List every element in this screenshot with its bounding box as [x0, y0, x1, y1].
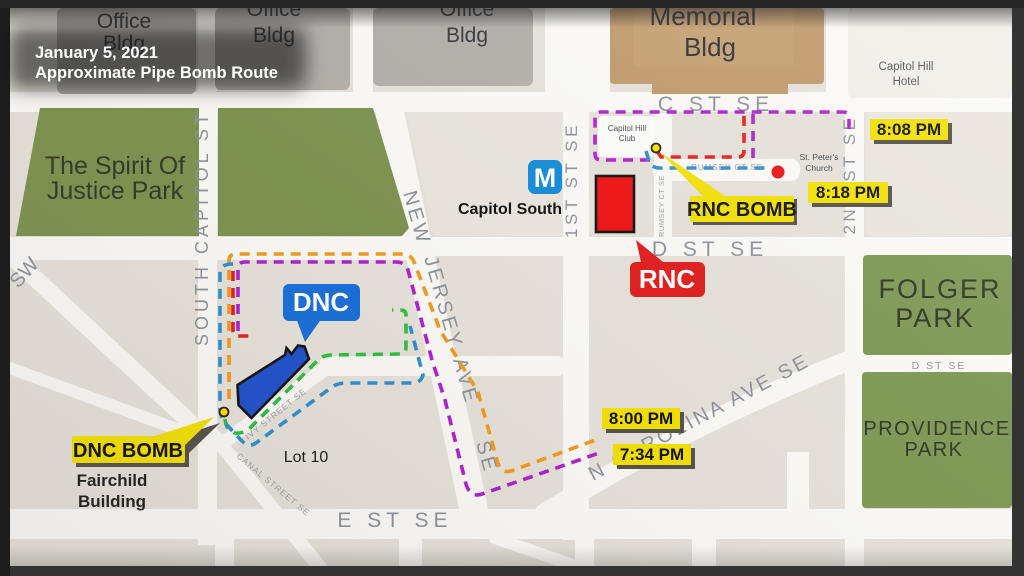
- svg-text:2ND ST SE: 2ND ST SE: [840, 115, 859, 234]
- svg-text:The Spirit Of: The Spirit Of: [45, 152, 185, 180]
- svg-text:Justice Park: Justice Park: [47, 177, 184, 205]
- svg-text:RUMSEY CT SE: RUMSEY CT SE: [657, 175, 666, 237]
- svg-text:Church: Church: [805, 163, 833, 173]
- svg-text:RNC BOMB: RNC BOMB: [687, 199, 797, 221]
- svg-text:SOUTH CAPITOL ST: SOUTH CAPITOL ST: [192, 110, 212, 346]
- svg-text:Capitol Hill: Capitol Hill: [879, 61, 934, 73]
- svg-text:Office: Office: [440, 8, 494, 21]
- svg-text:Lot 10: Lot 10: [284, 449, 329, 466]
- svg-text:Building: Building: [78, 492, 146, 511]
- svg-text:PROVIDENCE: PROVIDENCE: [863, 418, 1010, 440]
- svg-text:DNC BOMB: DNC BOMB: [73, 440, 183, 462]
- svg-text:M: M: [534, 163, 557, 193]
- svg-text:Club: Club: [619, 134, 636, 143]
- svg-text:Capitol South: Capitol South: [458, 201, 562, 218]
- svg-text:8:18 PM: 8:18 PM: [816, 183, 880, 202]
- svg-text:Memorial: Memorial: [650, 8, 757, 31]
- svg-text:D ST SE: D ST SE: [652, 238, 768, 261]
- svg-text:7:34 PM: 7:34 PM: [620, 445, 684, 464]
- svg-text:St. Peter's: St. Peter's: [800, 152, 839, 162]
- svg-text:Bldg: Bldg: [446, 24, 488, 47]
- svg-text:1ST ST SE: 1ST ST SE: [562, 122, 581, 238]
- svg-text:PARK: PARK: [905, 439, 964, 461]
- svg-text:Capitol Hill: Capitol Hill: [608, 124, 646, 133]
- svg-text:E ST SE: E ST SE: [337, 509, 452, 532]
- svg-text:FOLGER: FOLGER: [878, 274, 1001, 304]
- svg-text:D ST SE: D ST SE: [912, 360, 967, 372]
- svg-text:8:00 PM: 8:00 PM: [609, 409, 673, 428]
- svg-text:RNC: RNC: [639, 264, 696, 294]
- svg-text:Bldg: Bldg: [684, 32, 736, 62]
- svg-text:PARK: PARK: [895, 303, 975, 333]
- svg-text:Fairchild: Fairchild: [77, 471, 148, 490]
- svg-text:DNC: DNC: [293, 287, 350, 317]
- svg-text:Office: Office: [247, 8, 301, 21]
- svg-text:8:08 PM: 8:08 PM: [877, 120, 941, 139]
- svg-text:Hotel: Hotel: [893, 76, 920, 88]
